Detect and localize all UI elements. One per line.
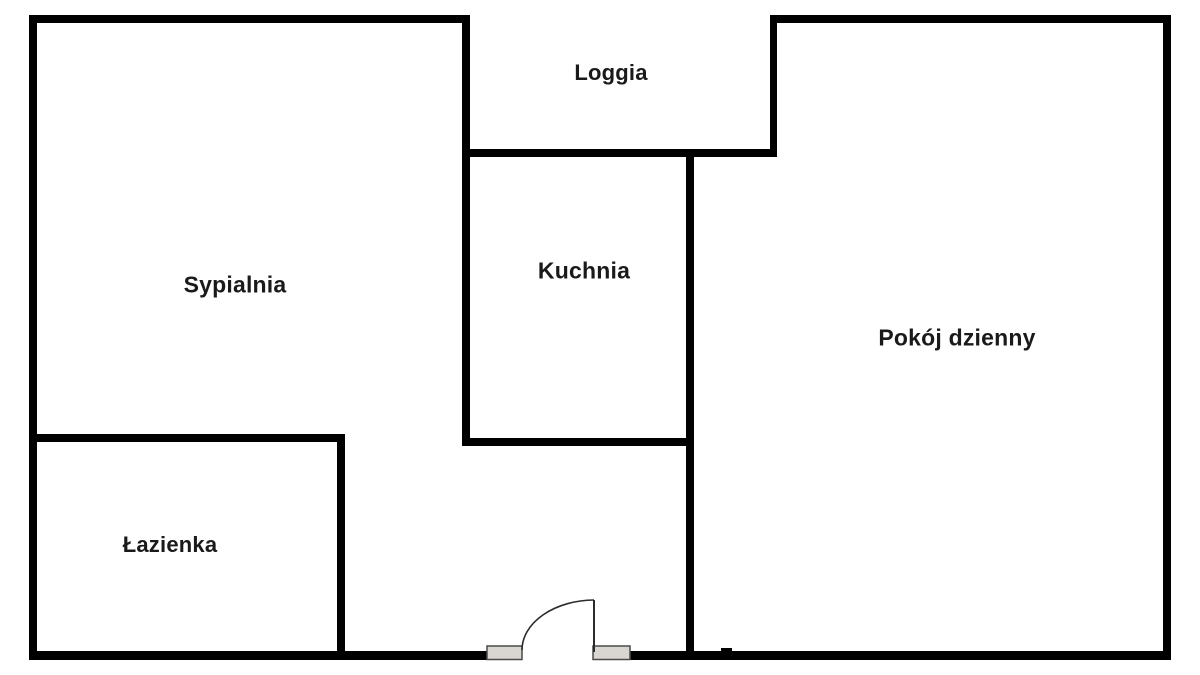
wall-kitchen-bottom — [462, 438, 694, 446]
room-label-sypialnia: Sypialnia — [184, 272, 287, 299]
wall-left — [29, 15, 37, 660]
floor-plan: Loggia Sypialnia Kuchnia Pokój dzienny Ł… — [0, 0, 1200, 675]
wall-bathroom-right — [337, 434, 345, 660]
door-swing-arc — [522, 600, 594, 650]
room-label-lazienka: Łazienka — [123, 532, 218, 558]
wall-stub — [721, 648, 732, 654]
wall-top-left — [29, 15, 469, 23]
wall-loggia-bottom — [462, 149, 777, 157]
door-jamb-right — [593, 646, 630, 660]
wall-bathroom-top — [29, 434, 345, 442]
room-label-pokoj-dzienny: Pokój dzienny — [878, 325, 1035, 352]
wall-top-right — [770, 15, 1171, 23]
wall-living-room-divider — [686, 151, 694, 660]
wall-bottom-left-segment — [29, 651, 487, 660]
entrance-door — [487, 600, 630, 660]
door-jamb-left — [487, 646, 522, 660]
wall-right — [1163, 15, 1171, 660]
wall-loggia-kitchen-left — [462, 15, 470, 446]
wall-loggia-right — [770, 15, 777, 157]
room-label-loggia: Loggia — [574, 60, 647, 86]
room-label-kuchnia: Kuchnia — [538, 258, 630, 285]
wall-bottom-right-segment — [630, 651, 1171, 660]
